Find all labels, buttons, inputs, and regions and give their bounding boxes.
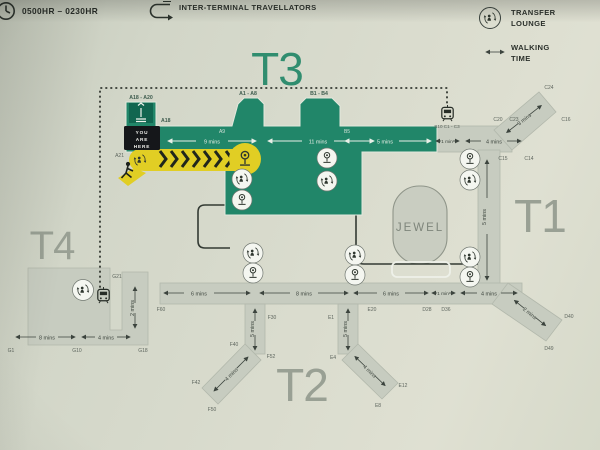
svg-text:1 min: 1 min bbox=[437, 291, 449, 297]
travellators-label: INTER-TERMINAL TRAVELLATORS bbox=[179, 3, 317, 12]
operating-hours-label: 0500HR – 0230HR bbox=[22, 6, 98, 16]
transfer-lounge-icon bbox=[460, 170, 480, 190]
gate-label: A9 bbox=[219, 129, 225, 135]
gate-label: F60 bbox=[157, 307, 166, 313]
svg-text:8 mins: 8 mins bbox=[39, 335, 55, 341]
route-start-circle bbox=[129, 149, 151, 171]
gate-label: D28 bbox=[422, 307, 431, 313]
t2-title: T2 bbox=[276, 359, 328, 411]
clock-icon bbox=[0, 3, 14, 19]
transfer-lounge-icon bbox=[317, 171, 337, 191]
transfer-lounge-icon bbox=[73, 280, 94, 301]
gate-label: B1 - B4 bbox=[310, 91, 328, 97]
you-are-here-line1: YOU bbox=[136, 130, 149, 135]
skytrain-icon bbox=[460, 149, 480, 169]
gate-label: F52 bbox=[267, 354, 276, 360]
gate-label: D49 bbox=[544, 346, 553, 352]
gate-label: C14 bbox=[524, 156, 533, 162]
you-are-here-line3: HERE bbox=[134, 144, 151, 149]
svg-text:5 mins: 5 mins bbox=[482, 209, 488, 225]
svg-text:4 mins: 4 mins bbox=[481, 291, 497, 297]
skytrain-icon bbox=[317, 148, 337, 168]
jewel-title: JEWEL bbox=[396, 222, 444, 234]
gate-label: A18 - A20 bbox=[129, 95, 153, 101]
svg-text:6 mins: 6 mins bbox=[383, 291, 399, 297]
gate-label: F30 bbox=[268, 315, 277, 321]
gate-label: C23 bbox=[509, 117, 518, 123]
transfer-lounge-icon bbox=[232, 169, 252, 189]
svg-text:6 mins: 6 mins bbox=[191, 291, 207, 297]
transfer-lounge-icon bbox=[460, 247, 480, 267]
gate-label: A1 - A8 bbox=[239, 91, 257, 97]
svg-text:9 mins: 9 mins bbox=[204, 139, 220, 145]
svg-text:5 mins: 5 mins bbox=[343, 321, 349, 337]
gate-label: E20 bbox=[368, 307, 377, 313]
you-are-here-marker: YOU ARE HERE bbox=[124, 126, 160, 150]
gate-label: F50 bbox=[208, 407, 217, 413]
gate-label: G10 bbox=[72, 348, 82, 354]
svg-text:4 mins: 4 mins bbox=[98, 335, 114, 341]
transfer-lounge-label-1: TRANSFER bbox=[511, 8, 556, 17]
t4-title: T4 bbox=[30, 224, 75, 268]
gate-label: G18 bbox=[138, 348, 148, 354]
skytrain-icon bbox=[232, 190, 252, 210]
you-are-here-line2: ARE bbox=[136, 137, 149, 142]
gate-label: C16 bbox=[561, 117, 570, 123]
walking-time-label-2: TIME bbox=[511, 54, 531, 63]
skytrain-icon bbox=[243, 263, 263, 283]
svg-text:11 mins: 11 mins bbox=[309, 139, 328, 145]
gate-label: D36 bbox=[441, 307, 450, 313]
transfer-lounge-icon bbox=[480, 8, 501, 29]
svg-text:8 mins: 8 mins bbox=[296, 291, 312, 297]
skytrain-icon bbox=[345, 265, 365, 285]
walking-time-label-1: WALKING bbox=[511, 43, 550, 52]
skytrain-icon bbox=[460, 267, 480, 287]
gate-label: E12 bbox=[399, 383, 408, 389]
shuttle-bus-icon bbox=[442, 105, 453, 121]
t3-title: T3 bbox=[251, 43, 303, 95]
gate-label: C24 bbox=[544, 85, 553, 91]
gate-label: D40 bbox=[564, 314, 573, 320]
gate-label: E8 bbox=[375, 403, 381, 409]
gate-label: C15 bbox=[498, 156, 507, 162]
gate-label: G1 bbox=[8, 348, 15, 354]
gate-label: E4 bbox=[330, 355, 336, 361]
gate-label: E1 bbox=[328, 315, 334, 321]
terminal-map-sign: 0500HR – 0230HR INTER-TERMINAL TRAVELLAT… bbox=[0, 0, 600, 450]
gate-label: A18 bbox=[161, 118, 171, 124]
svg-text:2 mins: 2 mins bbox=[130, 300, 136, 316]
svg-text:1 min: 1 min bbox=[441, 139, 453, 145]
gate-label: F40 bbox=[230, 342, 239, 348]
gate-label: B10 C1 - C3 bbox=[434, 124, 460, 129]
gate-label: A21 bbox=[115, 153, 124, 159]
svg-text:5 mins: 5 mins bbox=[250, 321, 256, 337]
t1-title: T1 bbox=[514, 190, 566, 242]
transfer-lounge-label-2: LOUNGE bbox=[511, 19, 546, 28]
transfer-lounge-icon bbox=[345, 245, 365, 265]
gate-label: B5 bbox=[344, 129, 350, 135]
travellator-icon bbox=[151, 2, 174, 21]
svg-text:4 mins: 4 mins bbox=[486, 139, 502, 145]
gate-label: G21 bbox=[112, 274, 122, 280]
svg-text:5 mins: 5 mins bbox=[377, 139, 393, 145]
gate-label: F42 bbox=[192, 380, 201, 386]
transfer-lounge-icon bbox=[243, 243, 263, 263]
gate-label: C20 bbox=[493, 117, 502, 123]
